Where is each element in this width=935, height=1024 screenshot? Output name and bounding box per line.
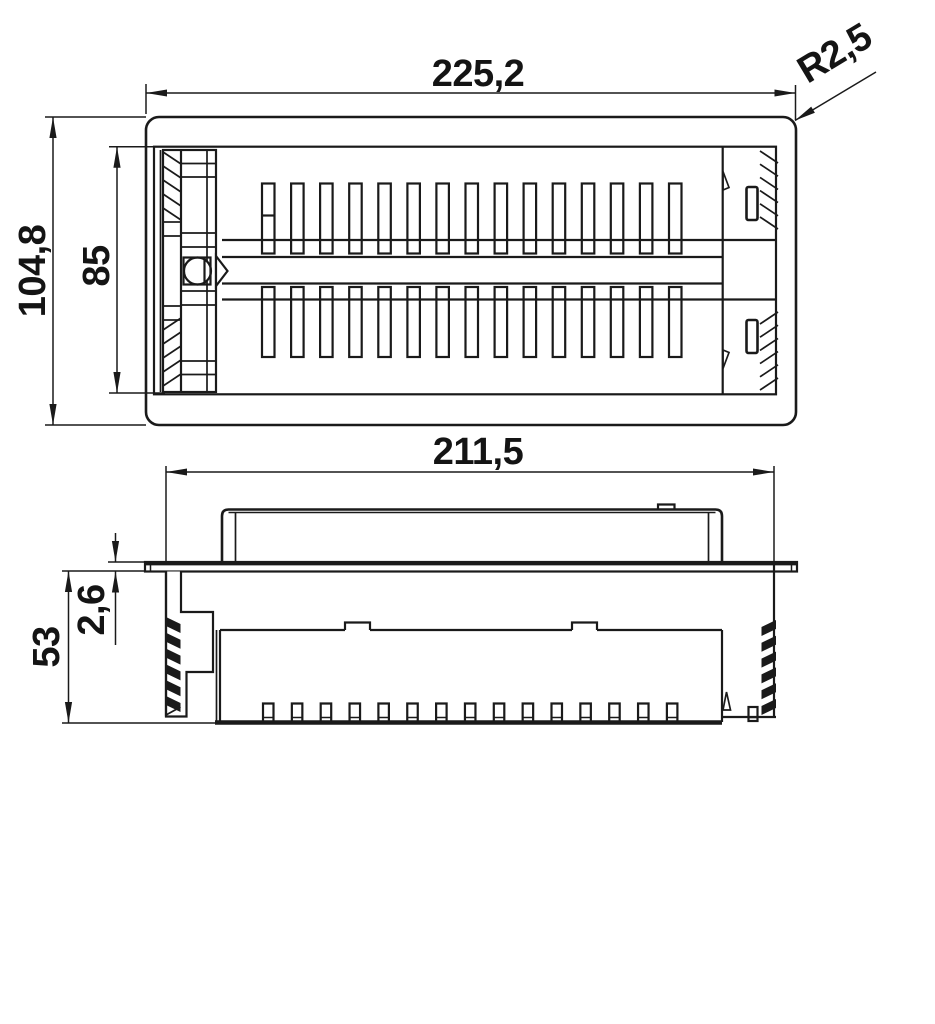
dim-label-overall-depth: 104,8	[12, 225, 54, 318]
top-view: 225,2 R2,5 104,8 85	[12, 15, 879, 425]
arrowhead	[166, 469, 187, 476]
dim-label-corner-radius: R2,5	[790, 15, 879, 92]
side-view: 211,5 53 2,6	[26, 431, 797, 723]
bezel-outline	[146, 117, 796, 425]
arrowhead	[113, 372, 120, 393]
body-bump	[572, 623, 597, 631]
technical-drawing: 225,2 R2,5 104,8 85	[0, 0, 935, 1024]
foot	[523, 704, 534, 723]
foot	[638, 704, 649, 723]
dim-label-body-height: 53	[26, 626, 68, 667]
lid-outline	[222, 510, 722, 563]
technical-drawing-canvas: 225,2 R2,5 104,8 85	[0, 0, 935, 1024]
latch-pivot-circle	[184, 258, 211, 285]
foot	[465, 704, 476, 723]
body-bump	[345, 623, 370, 631]
arrowhead	[113, 147, 120, 168]
foot	[494, 704, 505, 723]
arrowhead	[49, 404, 56, 425]
foot	[350, 704, 361, 723]
feet-row	[263, 704, 677, 723]
foot	[580, 704, 591, 723]
arrow-mark	[723, 692, 731, 710]
foot	[609, 704, 620, 723]
dim-flange-thickness: 2,6	[71, 533, 146, 645]
arrowhead	[65, 702, 72, 723]
right-foot	[749, 707, 758, 721]
foot	[407, 704, 418, 723]
foot	[667, 704, 678, 723]
foot	[436, 704, 447, 723]
dim-body-width: 211,5	[166, 431, 774, 717]
dim-overall-width: 225,2	[146, 53, 796, 120]
arrowhead	[146, 90, 167, 97]
foot	[552, 704, 563, 723]
dim-label-opening-depth: 85	[76, 245, 118, 287]
foot	[378, 704, 389, 723]
foot	[292, 704, 303, 723]
arrowhead	[112, 541, 119, 562]
arrowhead	[49, 117, 56, 138]
dim-label-body-width: 211,5	[433, 431, 524, 473]
arrowhead	[753, 469, 774, 476]
foot	[263, 704, 274, 723]
dim-corner-radius: R2,5	[790, 15, 879, 120]
dim-label-overall-width: 225,2	[432, 53, 525, 95]
foot	[321, 704, 332, 723]
dim-label-flange-thickness: 2,6	[71, 584, 113, 635]
arrowhead	[775, 90, 796, 97]
arrowhead	[795, 107, 815, 121]
